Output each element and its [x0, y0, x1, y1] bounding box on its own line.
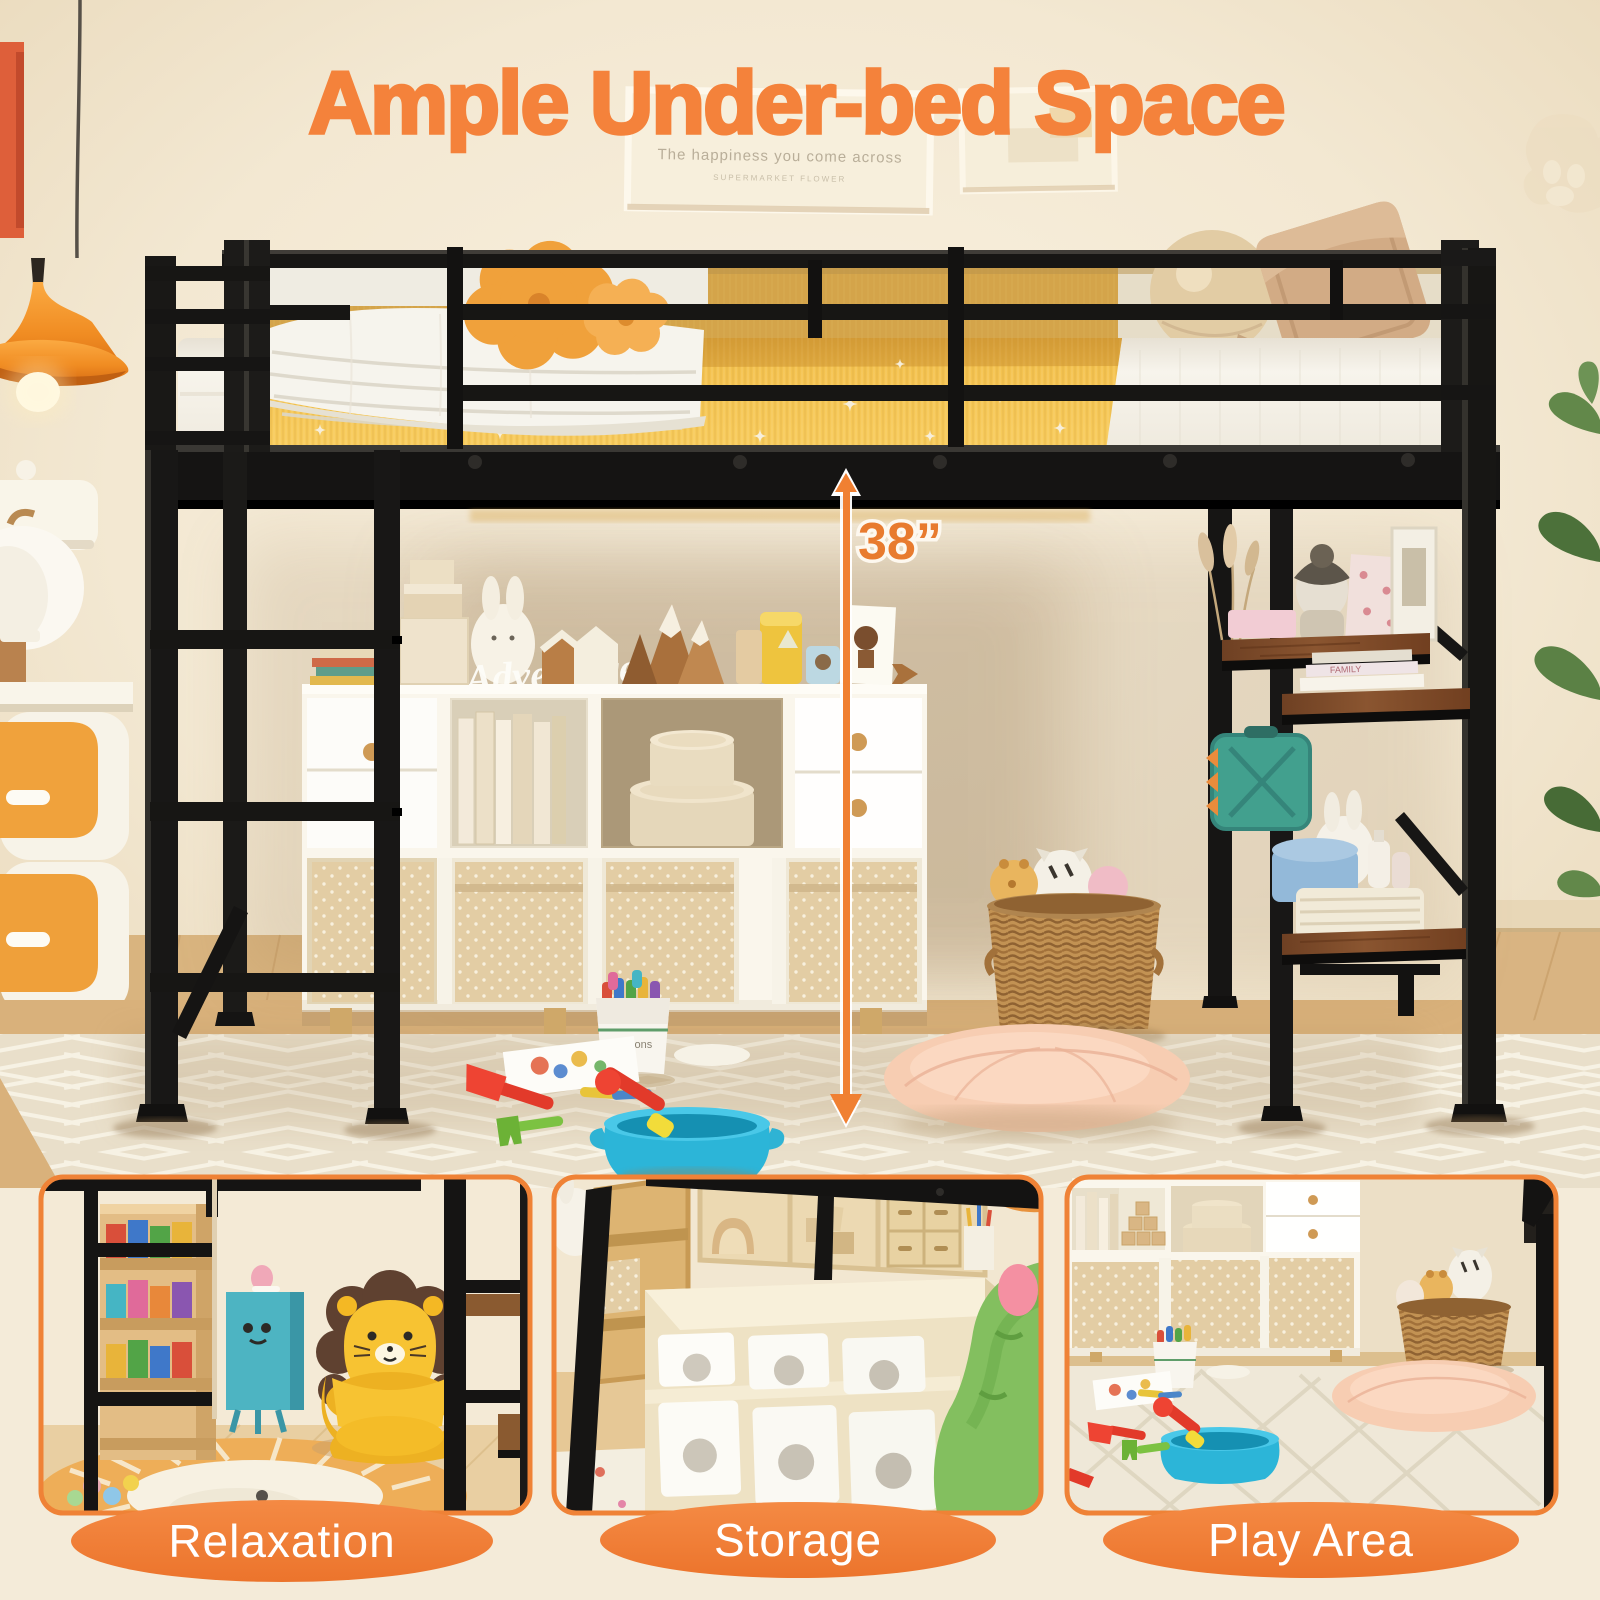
svg-text:Ample Under-bed Space: Ample Under-bed Space [308, 53, 1283, 152]
svg-text:38”: 38” [858, 513, 942, 571]
svg-text:Relaxation: Relaxation [168, 1515, 395, 1567]
svg-text:Storage: Storage [714, 1514, 882, 1566]
svg-text:FAMILY: FAMILY [1330, 664, 1362, 675]
svg-text:Play Area: Play Area [1208, 1514, 1414, 1566]
svg-text:SUPERMARKET FLOWER: SUPERMARKET FLOWER [713, 173, 846, 184]
